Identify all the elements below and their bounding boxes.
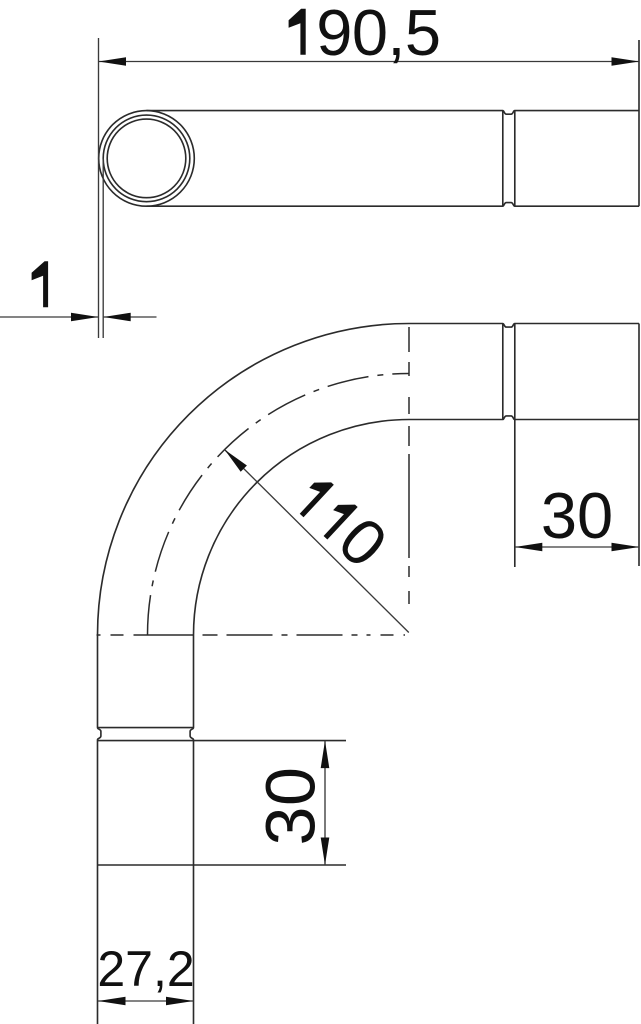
svg-text:27,2: 27,2 <box>97 941 194 997</box>
svg-text:30: 30 <box>252 767 330 846</box>
svg-text:90,5: 90,5 <box>316 0 440 69</box>
svg-text:30: 30 <box>541 479 613 552</box>
svg-text:0: 0 <box>325 503 401 581</box>
